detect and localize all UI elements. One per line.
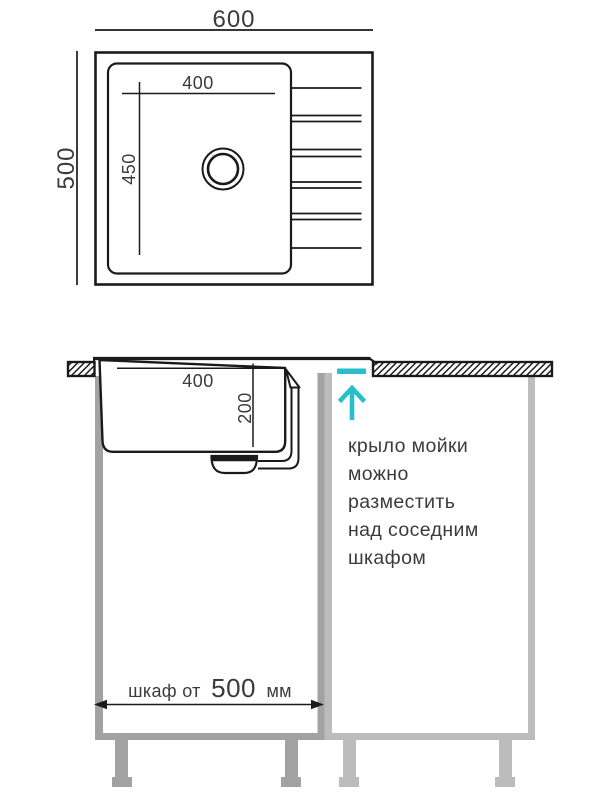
note-line: можно: [348, 463, 409, 485]
left-cabinet-right-wall: [318, 373, 325, 740]
note-line: крыло мойки: [348, 435, 468, 457]
right-cabinet-right-wall: [528, 376, 535, 740]
top-view-drawing: 600 500 400 450: [0, 0, 600, 330]
overall-width-label: 600: [212, 6, 255, 33]
sink-installation-diagram: 600 500 400 450: [0, 0, 600, 800]
overall-depth-label: 500: [53, 146, 80, 189]
cabinet-leg: [499, 740, 512, 777]
left-cabinet-bottom: [95, 733, 325, 740]
highlight-dash: [337, 369, 366, 375]
bowl-width-label: 400: [182, 73, 214, 93]
cabinet-leg: [285, 740, 298, 777]
cabinet-width-label: шкаф от 500 мм: [128, 673, 292, 703]
section-bowl-width-label: 400: [182, 371, 214, 391]
cabinet-leg: [115, 740, 128, 777]
right-cabinet-left-wall: [325, 373, 333, 740]
right-cabinet-bottom: [325, 733, 536, 740]
cabinet-leg-foot: [112, 777, 132, 787]
cabinet-leg-foot: [495, 777, 515, 787]
section-view-drawing: шкаф от 500 мм 400 200 крыло мойки можно…: [0, 330, 600, 800]
countertop-right-hatch: [373, 362, 552, 376]
cabinet-width-dimension: шкаф от 500 мм: [94, 673, 324, 709]
up-arrow: [340, 388, 365, 420]
cabinet-width-label-unit: мм: [266, 681, 291, 701]
countertop-left-hatch: [68, 362, 95, 376]
bowl-depth-label: 450: [119, 153, 139, 185]
cabinet-leg-foot: [281, 777, 301, 787]
note-line: шкафом: [348, 547, 426, 569]
cabinet-leg: [343, 740, 356, 777]
cabinet-width-label-value: 500: [211, 673, 256, 703]
overflow-wedge: [286, 370, 300, 388]
drain-flange: [211, 455, 258, 461]
note-text: крыло мойки можно разместить над соседни…: [348, 435, 479, 569]
note-line: разместить: [348, 491, 455, 513]
cabinet-leg-foot: [339, 777, 359, 787]
note-line: над соседним: [348, 519, 479, 541]
section-bowl-depth-label: 200: [235, 392, 255, 424]
cabinet-width-label-prefix: шкаф от: [128, 681, 201, 701]
